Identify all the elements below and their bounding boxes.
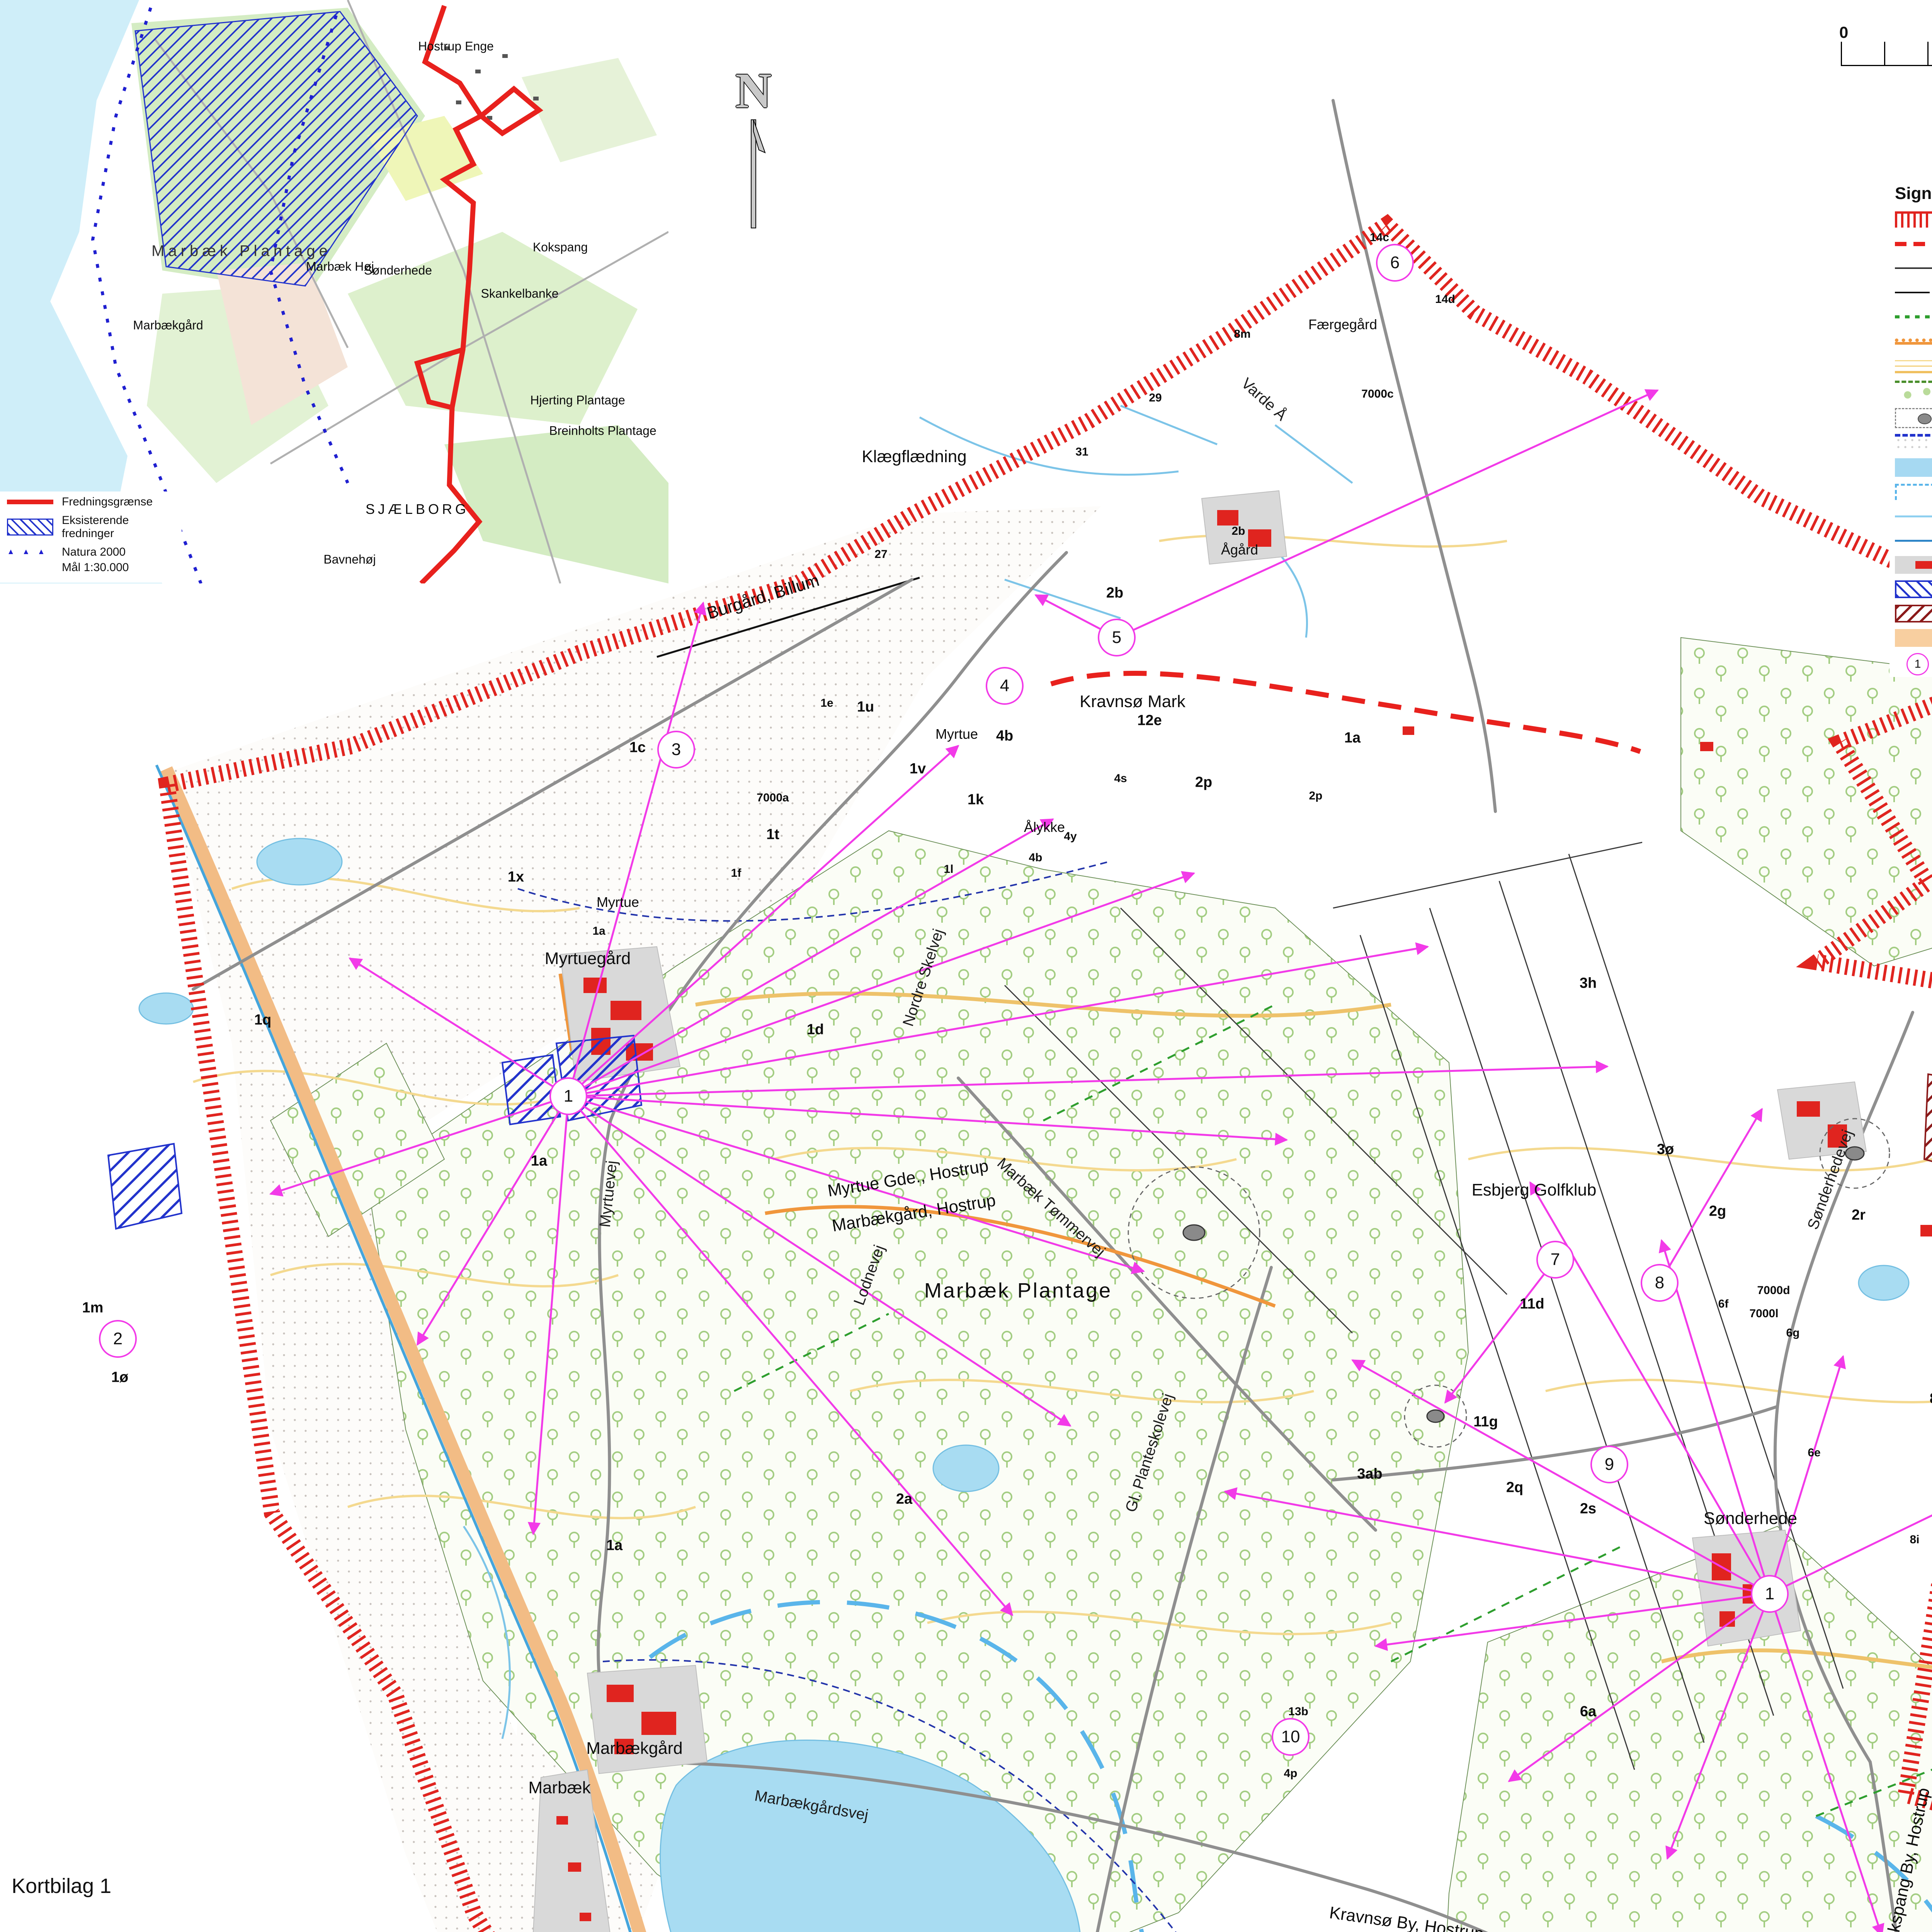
strand-swatch (1895, 434, 1932, 452)
legend-item: Kyst (1895, 531, 1932, 550)
dige-swatch (1895, 338, 1932, 345)
hoejde-swatch (1895, 357, 1932, 374)
inset-legend-item: ▲ ▲ ▲ ▲ ▲Natura 2000 (7, 546, 182, 559)
inset-scale-note: Mål 1:30.000 (62, 561, 182, 574)
scale-bar: 0 619,1 meter Skala: 1:5.500 (1824, 23, 1932, 125)
legend-title: Signaturforklaring (1895, 184, 1932, 203)
natura-swatch: ▲ ▲ ▲ ▲ ▲ (7, 548, 53, 557)
fredningsgraense-swatch (1895, 211, 1932, 228)
vandloeb-swatch (1895, 515, 1932, 517)
fortidsminde-swatch (1895, 408, 1932, 428)
red-swatch (7, 500, 53, 504)
legend: Signaturforklaring FredningsgrænseNy sti… (1889, 182, 1932, 677)
legend-item: Levende hegn (1895, 308, 1932, 326)
inset-legend-item: Fredningsgrænse (7, 495, 182, 509)
sti-swatch (1895, 267, 1932, 269)
inset-legend-label: Eksisterende fredninger (62, 514, 182, 540)
legend-item: Ejerlavsgrænse (1895, 283, 1932, 302)
inset-map: Hostrup EngeMarbæk PlantageMarbæk HøjSøn… (0, 0, 668, 583)
skydeplads-area (1924, 1074, 1932, 1171)
inset-legend-item: Eksisterende fredninger (7, 514, 182, 540)
north-letter: N (726, 66, 781, 116)
bluehatch-swatch (7, 519, 53, 536)
inset-legend-label: Fredningsgrænse (62, 495, 153, 509)
fredskov-swatch (1895, 381, 1932, 402)
legend-item: Sti (1895, 259, 1932, 277)
ejerlav-swatch (1895, 292, 1932, 293)
scale-ratio: Skala: 1:5.500 (1824, 106, 1932, 125)
nysti-swatch (1895, 242, 1932, 246)
legend-item: Sø (1895, 458, 1932, 477)
legend-item: Sø- og åbeskyttelseslinje (1895, 483, 1932, 501)
north-arrow: N (726, 66, 781, 234)
legend-item: Umatrikuleret areal (1895, 629, 1932, 647)
legend-item: Fortidsminde (1895, 408, 1932, 428)
scale-unit: meter (1824, 73, 1932, 90)
ny-sti (1051, 673, 1640, 752)
legend-item: Strandbeskyttelse (1895, 434, 1932, 452)
north-arrow-icon (726, 116, 781, 232)
map-sheet: ✕✕✕✕ (0, 0, 1932, 1932)
legend-item: Vandløb (1895, 507, 1932, 526)
soe-swatch (1895, 458, 1932, 477)
henvisning-swatch: 1 (1895, 653, 1932, 673)
soelinje-swatch (1895, 484, 1932, 500)
legend-item: Højdekurver (1895, 356, 1932, 375)
hegn-swatch (1895, 315, 1932, 318)
bebyggelse-swatch (1895, 556, 1932, 574)
inset-legend-label: Natura 2000 (62, 546, 126, 559)
legend-item: Beskyttede sten- og jorddige (1895, 332, 1932, 350)
kortbilag-label: Kortbilag 1 (12, 1874, 111, 1898)
skyde-swatch (1895, 605, 1932, 622)
kyst-swatch (1895, 540, 1932, 542)
legend-item: Ny sti (1895, 235, 1932, 253)
legend-item: Fredningsgrænse (1895, 210, 1932, 229)
legend-item: Fredskov (1895, 381, 1932, 402)
legend-item: Bebyggelse med have/gårdsplads (1895, 556, 1932, 574)
umatrikuleret-swatch (1895, 629, 1932, 647)
scale-bar-line (1841, 41, 1932, 66)
legend-item: Friluftsaktiviteter (1895, 580, 1932, 599)
frilufts-swatch (1895, 580, 1932, 598)
legend-item: 1Henvisning til areal- og lodsejerliste (1895, 653, 1932, 673)
inset-legend: FredningsgrænseEksisterende fredninger▲ … (0, 492, 182, 583)
scale-start: 0 (1839, 23, 1848, 42)
legend-item: Forsvarets skydeplads (1895, 604, 1932, 623)
